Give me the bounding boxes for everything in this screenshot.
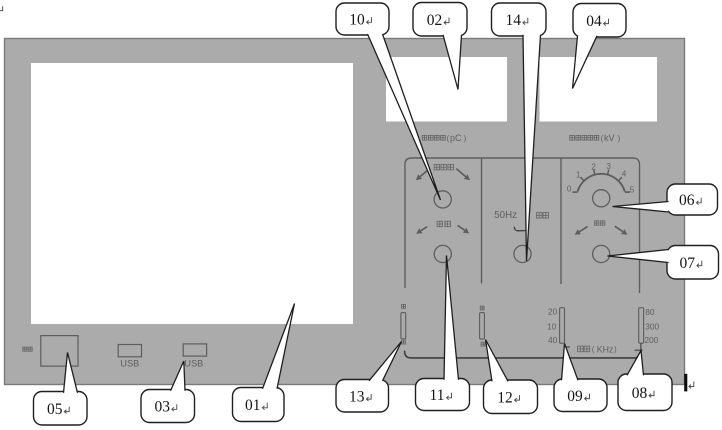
svg-text:(: ( (592, 345, 595, 354)
svg-text:3: 3 (606, 162, 611, 171)
svg-text:12: 12 (497, 389, 513, 406)
svg-text:09: 09 (567, 388, 583, 405)
svg-text:10: 10 (547, 322, 557, 332)
svg-text:01: 01 (245, 397, 261, 414)
svg-text:USB: USB (184, 358, 203, 368)
svg-text:5: 5 (630, 185, 635, 194)
svg-text:1: 1 (576, 170, 581, 179)
svg-text:20: 20 (548, 306, 558, 316)
svg-text:): ) (614, 345, 617, 354)
svg-text:200: 200 (644, 335, 658, 345)
svg-text:kV: kV (604, 133, 615, 143)
svg-text:03: 03 (154, 399, 170, 416)
svg-text:05: 05 (47, 401, 63, 418)
svg-text:pC: pC (450, 133, 462, 143)
svg-text:4: 4 (622, 170, 627, 179)
svg-text:300: 300 (645, 322, 659, 332)
svg-text:KHz: KHz (597, 344, 614, 354)
svg-text:50Hz: 50Hz (494, 210, 517, 221)
svg-text:02: 02 (427, 12, 443, 29)
svg-text:2: 2 (591, 162, 596, 171)
svg-text:USB: USB (120, 358, 139, 368)
svg-text:10: 10 (349, 12, 365, 29)
svg-text:80: 80 (645, 307, 655, 317)
svg-text:): ) (464, 134, 467, 143)
svg-text:11: 11 (430, 387, 445, 404)
svg-text:08: 08 (632, 385, 648, 402)
svg-text:14: 14 (505, 12, 521, 29)
svg-text:13: 13 (349, 388, 365, 405)
svg-text:): ) (618, 134, 621, 143)
svg-text:06: 06 (679, 192, 695, 209)
svg-text:07: 07 (679, 255, 695, 272)
svg-text:04: 04 (586, 13, 602, 30)
svg-text:40: 40 (548, 335, 558, 345)
svg-text:0: 0 (567, 185, 572, 194)
